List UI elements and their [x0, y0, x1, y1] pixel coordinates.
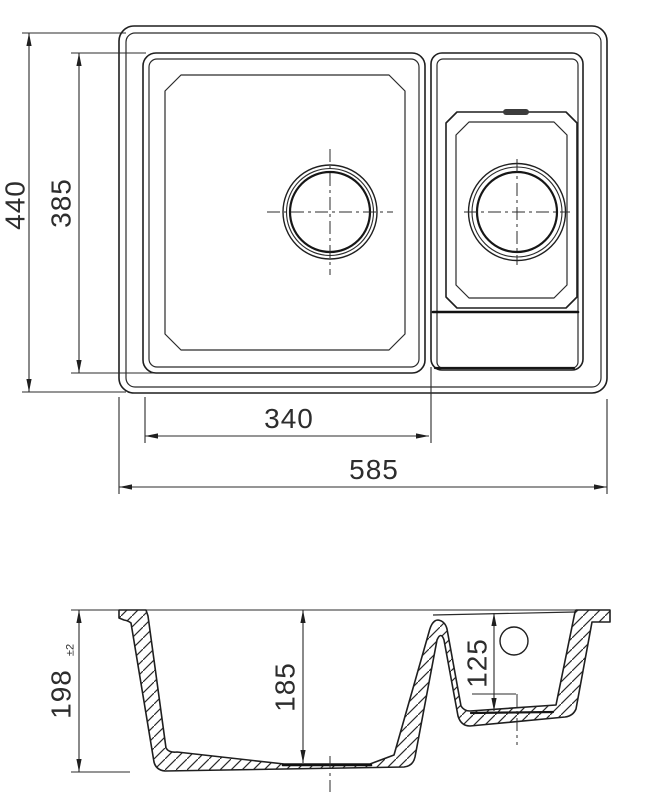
overflow-slot [503, 109, 529, 115]
dim-overall-height: 198 ±2 [46, 610, 130, 772]
sink-technical-drawing: 440 385 340 585 [0, 0, 650, 800]
dim-tolerance-label: ±2 [65, 644, 77, 656]
dim-label-198: 198 [46, 669, 77, 719]
dim-label-185: 185 [270, 662, 301, 712]
half-bowl-floor-edge [456, 122, 567, 298]
arrowhead-up [491, 613, 496, 626]
half-bowl-drain-recess [471, 712, 553, 713]
dim-label-125: 125 [462, 638, 493, 688]
arrowhead-left [145, 433, 158, 438]
dim-overall-width: 585 [119, 397, 607, 494]
sink-rim-inner-edge [126, 33, 601, 387]
main-bowl-rim-outer [143, 53, 425, 373]
arrowhead-up [26, 33, 31, 46]
dim-half-bowl-height: 125 [462, 613, 497, 711]
dim-label-585: 585 [349, 454, 399, 485]
arrowhead-up [300, 610, 305, 623]
main-drain [267, 149, 393, 275]
technical-drawing-sheet: 440 385 340 585 [0, 0, 650, 800]
arrowhead-down [76, 759, 81, 772]
dim-main-bowl-width: 340 [145, 367, 431, 443]
main-bowl-rim-inner [149, 59, 419, 367]
plan-view: 440 385 340 585 [0, 26, 607, 494]
half-bowl-shelf-edge-line [433, 612, 575, 615]
dim-label-385: 385 [46, 178, 77, 228]
overflow-hole [500, 627, 528, 655]
arrowhead-left [119, 484, 132, 489]
arrowhead-down [300, 750, 305, 763]
main-bowl-plan [143, 53, 425, 373]
sink-cross-section [119, 610, 610, 771]
arrowhead-down [26, 379, 31, 392]
section-view: 198 ±2 185 125 [46, 610, 610, 792]
dim-label-340: 340 [264, 403, 314, 434]
arrowhead-up [76, 53, 81, 66]
sink-outer-edge [119, 26, 607, 393]
dim-label-440: 440 [0, 180, 31, 230]
arrowhead-down [76, 360, 81, 373]
dim-main-bowl-height: 185 [270, 610, 306, 763]
arrowhead-right [594, 484, 607, 489]
arrowhead-up [76, 610, 81, 623]
dim-main-bowl-depth: 385 [46, 53, 153, 373]
half-bowl-plan [431, 53, 583, 370]
arrowhead-right [416, 433, 429, 438]
half-bowl-drain [464, 159, 570, 265]
